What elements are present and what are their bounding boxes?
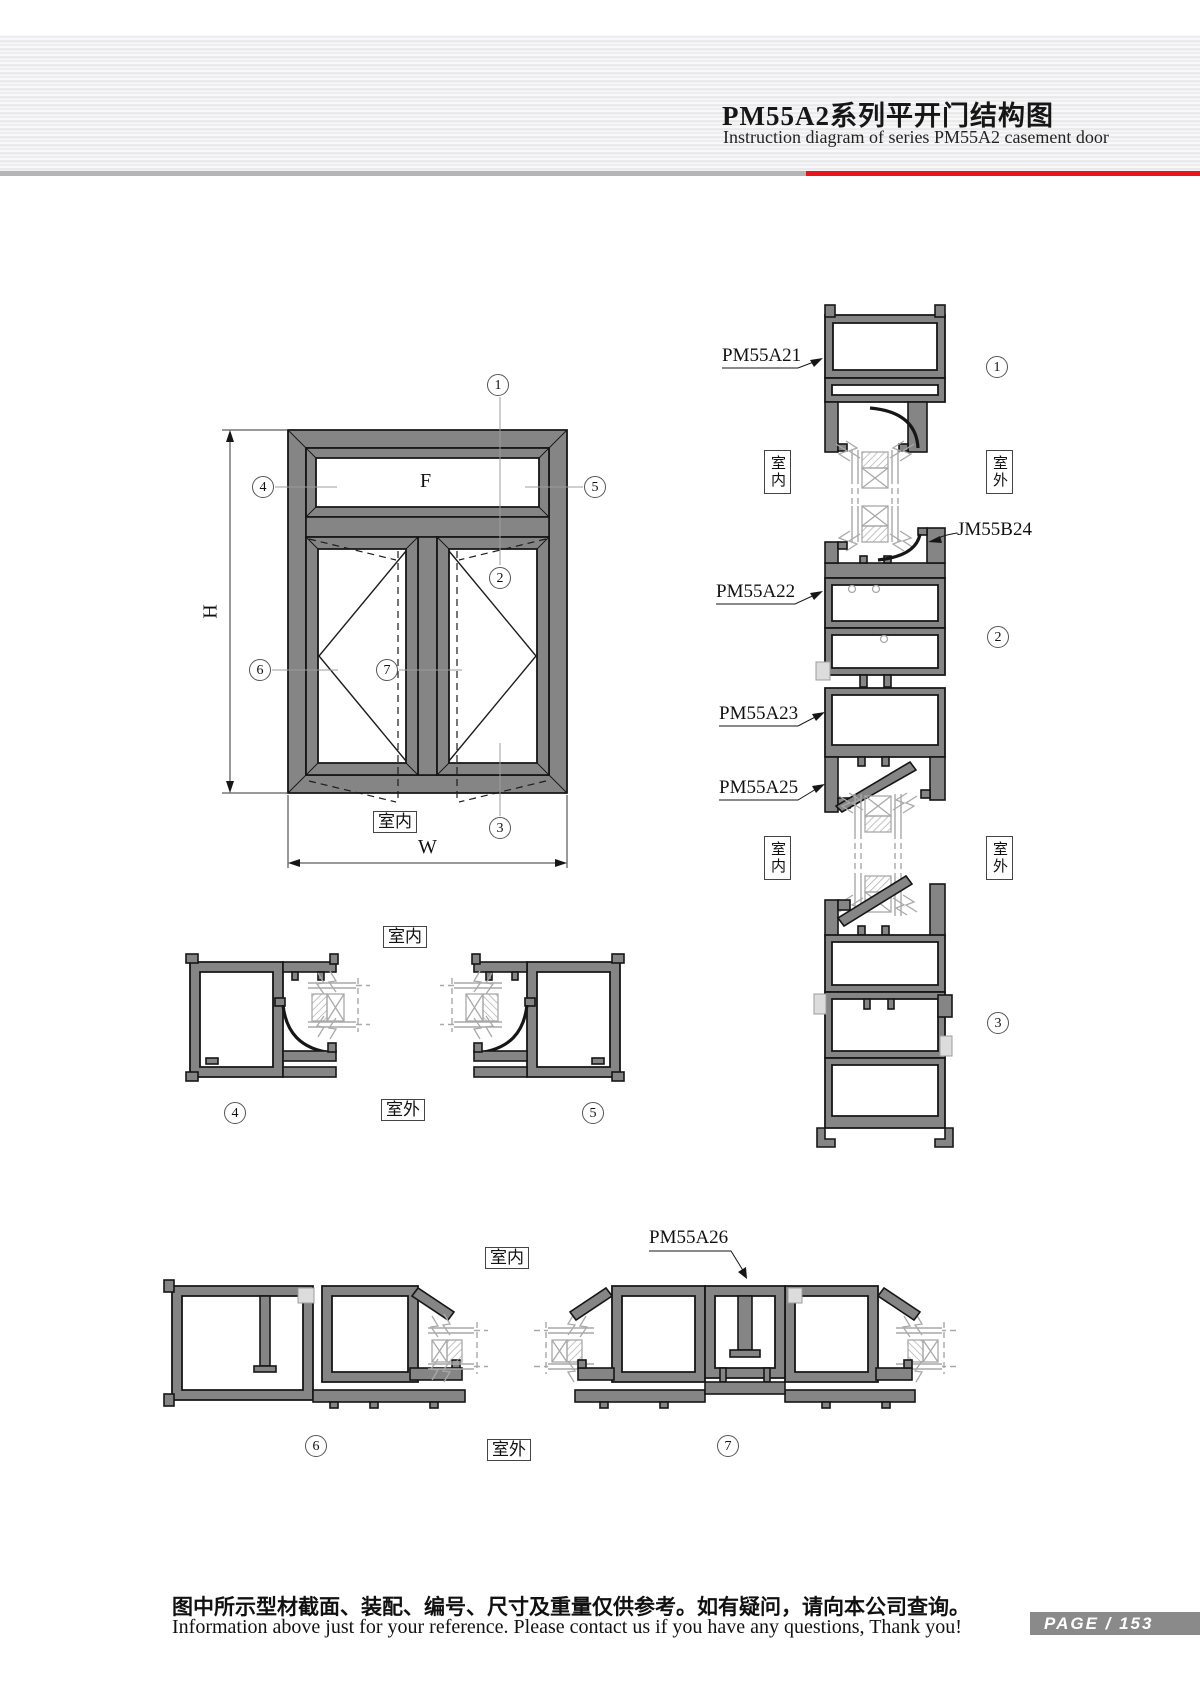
profile-label-pm55a25: PM55A25 — [719, 777, 798, 799]
vertical-section-stack — [649, 305, 957, 1279]
callout-1-elevation: 1 — [487, 374, 509, 396]
page-number-badge: PAGE / 153 — [1030, 1612, 1200, 1635]
outdoor-box-middle: 室外 — [381, 1099, 425, 1121]
height-dim-label: H — [200, 604, 223, 618]
callout-4-elevation: 4 — [252, 476, 274, 498]
profile-label-pm55a22: PM55A22 — [716, 581, 795, 603]
elevation-drawing — [222, 397, 583, 868]
callout-6-elevation: 6 — [249, 659, 271, 681]
leader-lines — [649, 358, 957, 1279]
section-6 — [164, 1280, 488, 1408]
callout-1-section: 1 — [986, 356, 1008, 378]
indoor-box-right-top: 室内 — [764, 450, 791, 494]
callout-2-elevation: 2 — [489, 567, 511, 589]
callout-7-elevation: 7 — [376, 659, 398, 681]
width-dim-label: W — [418, 836, 437, 859]
fixed-glass-label: F — [420, 470, 431, 493]
profile-label-pm55a23: PM55A23 — [719, 703, 798, 725]
callout-5-section: 5 — [582, 1102, 604, 1124]
section-7 — [534, 1286, 956, 1408]
callout-4-section: 4 — [224, 1102, 246, 1124]
footer-note-en: Information above just for your referenc… — [172, 1616, 962, 1639]
profile-label-pm55a21: PM55A21 — [722, 345, 801, 367]
section-4 — [186, 954, 370, 1081]
callout-2-section: 2 — [987, 626, 1009, 648]
callout-7-section: 7 — [717, 1435, 739, 1457]
outdoor-box-right-bottom: 室外 — [986, 836, 1013, 880]
indoor-box-bottom: 室内 — [485, 1247, 529, 1269]
indoor-box-right-bottom: 室内 — [764, 836, 791, 880]
callout-5-elevation: 5 — [584, 476, 606, 498]
catalog-page: PM55A2系列平开门结构图 Instruction diagram of se… — [0, 0, 1200, 1697]
callout-3-elevation: 3 — [489, 817, 511, 839]
section-5 — [440, 954, 624, 1081]
diagram-art — [0, 0, 1200, 1697]
indoor-box-middle: 室内 — [383, 926, 427, 948]
indoor-box-elevation: 室内 — [373, 811, 417, 833]
callout-6-section: 6 — [305, 1435, 327, 1457]
profile-label-jm55b24: JM55B24 — [957, 519, 1032, 541]
outdoor-box-bottom: 室外 — [487, 1439, 531, 1461]
callout-3-section: 3 — [987, 1012, 1009, 1034]
outdoor-box-right-top: 室外 — [986, 450, 1013, 494]
profile-label-pm55a26: PM55A26 — [649, 1227, 728, 1249]
